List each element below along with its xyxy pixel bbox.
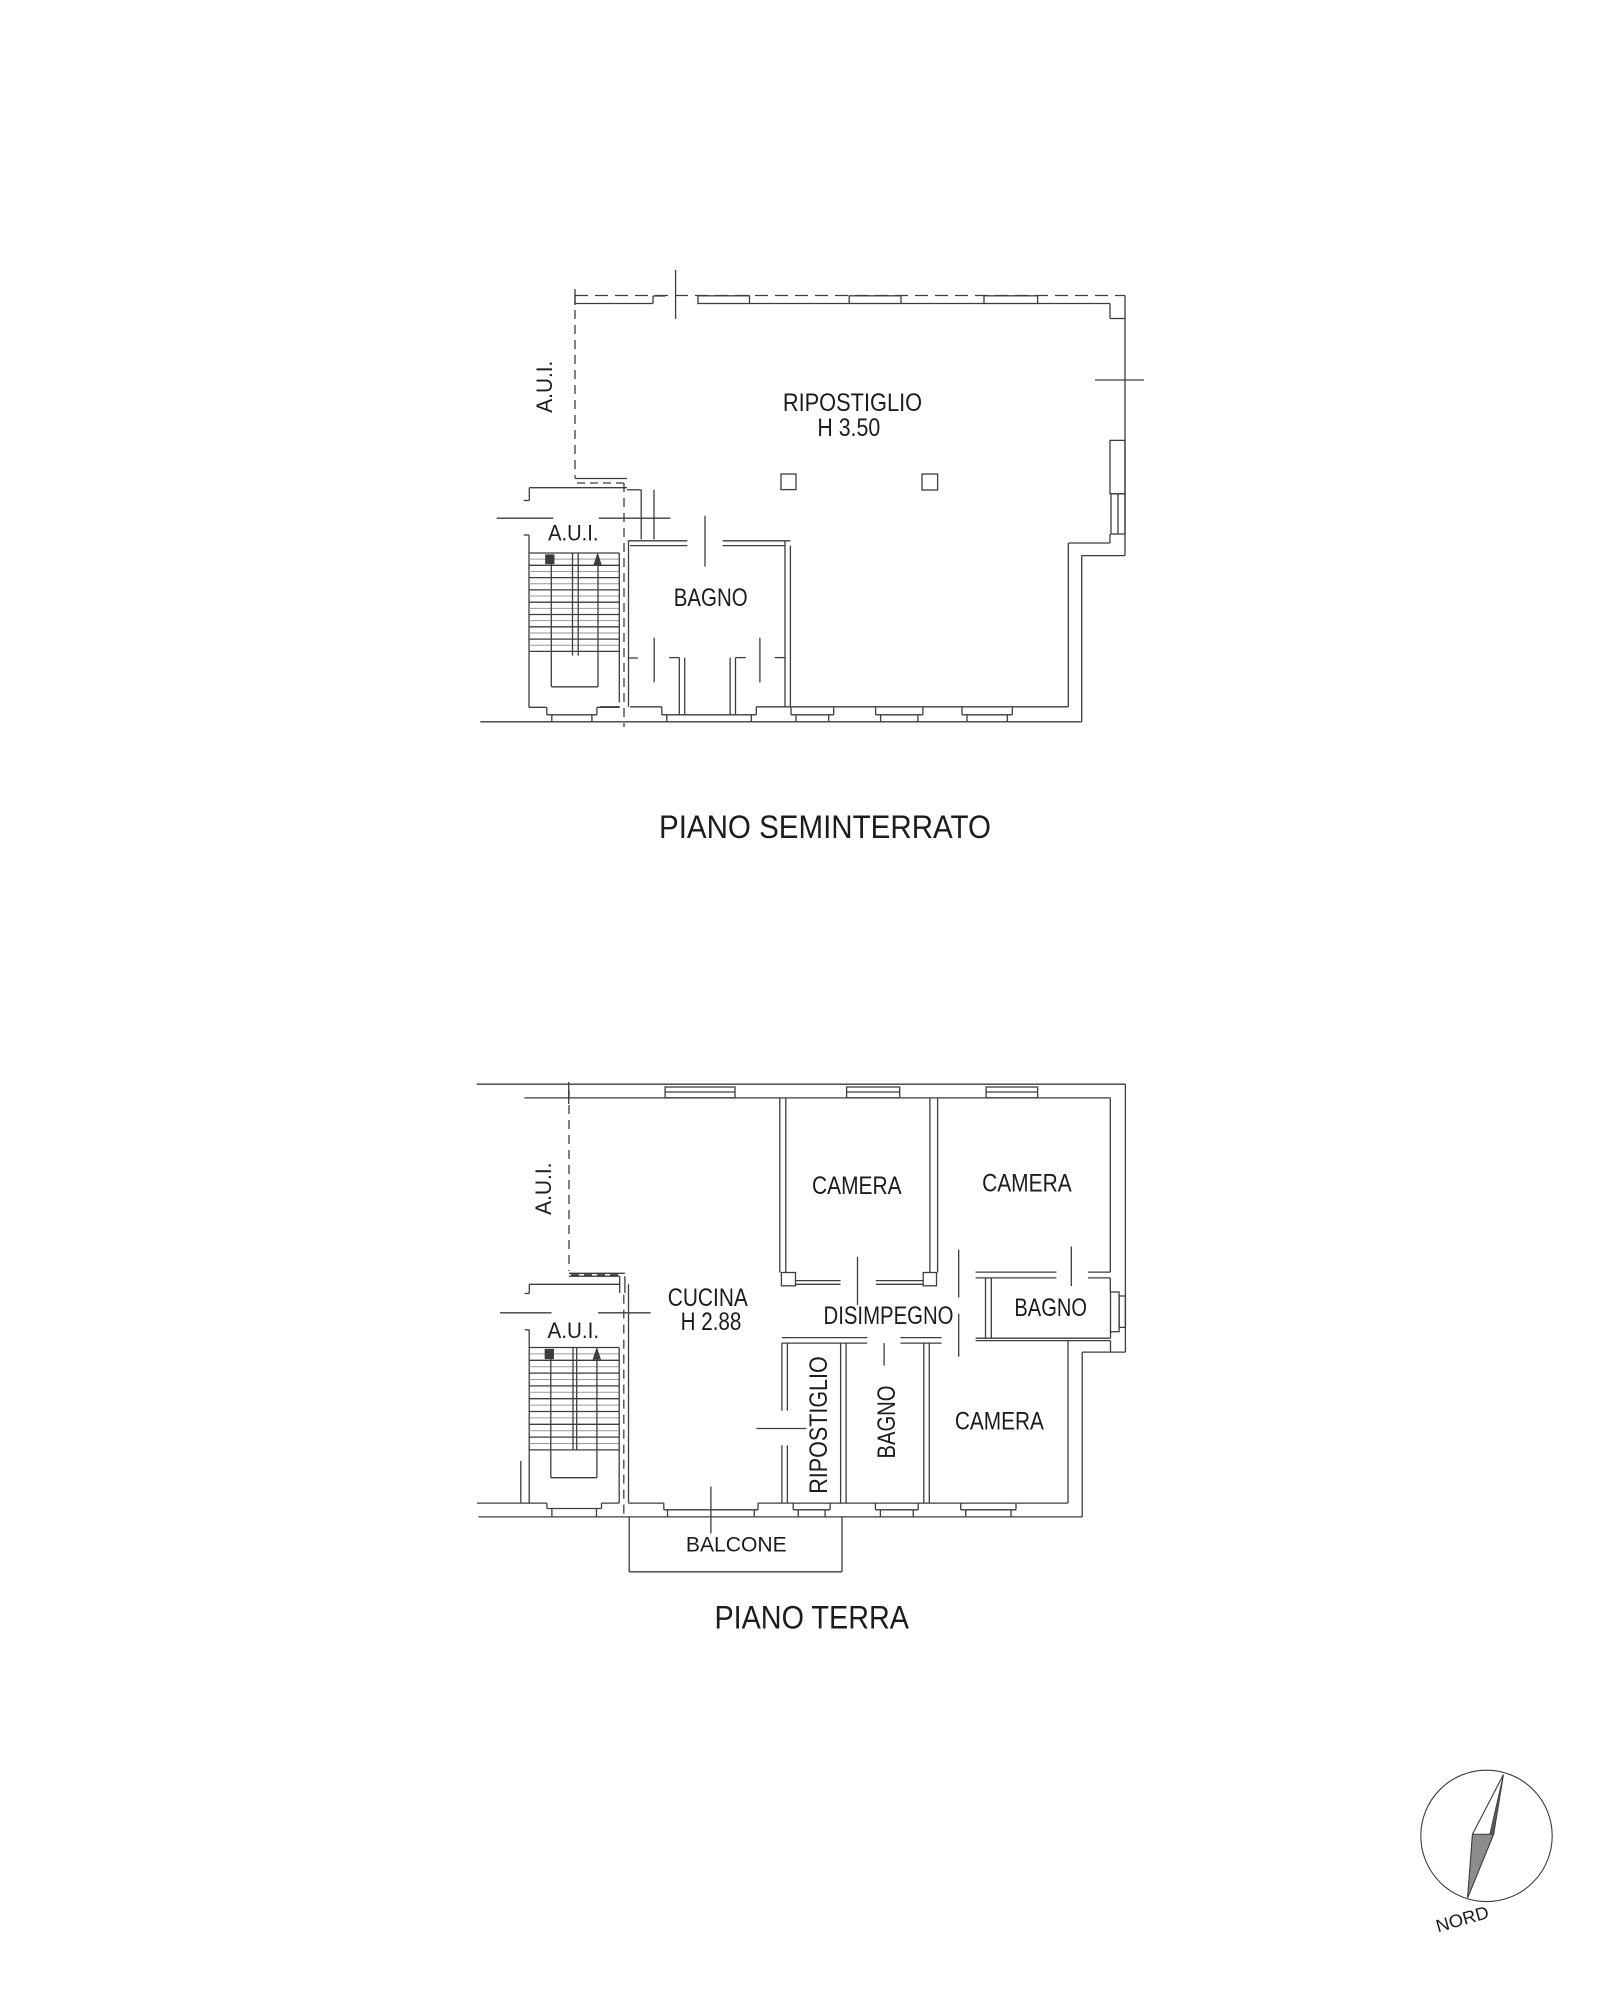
svg-text:PIANO TERRA: PIANO TERRA	[714, 1600, 909, 1636]
svg-text:BAGNO: BAGNO	[1014, 1294, 1087, 1322]
svg-text:RIPOSTIGLIO: RIPOSTIGLIO	[805, 1356, 833, 1494]
svg-text:RIPOSTIGLIO: RIPOSTIGLIO	[783, 389, 922, 417]
svg-text:CAMERA: CAMERA	[812, 1172, 902, 1200]
svg-text:NORD: NORD	[1434, 1902, 1491, 1936]
svg-text:H 2.88: H 2.88	[681, 1308, 742, 1336]
svg-text:CAMERA: CAMERA	[982, 1169, 1072, 1197]
svg-text:A.U.I.: A.U.I.	[547, 1318, 599, 1343]
svg-text:A.U.I.: A.U.I.	[532, 361, 557, 413]
svg-text:H 3.50: H 3.50	[817, 414, 880, 442]
svg-text:CAMERA: CAMERA	[955, 1408, 1044, 1436]
svg-text:A.U.I.: A.U.I.	[531, 1163, 556, 1215]
svg-text:PIANO SEMINTERRATO: PIANO SEMINTERRATO	[659, 809, 991, 845]
svg-text:BALCONE: BALCONE	[686, 1534, 787, 1557]
svg-text:BAGNO: BAGNO	[873, 1385, 901, 1458]
svg-text:BAGNO: BAGNO	[674, 584, 748, 612]
svg-text:A.U.I.: A.U.I.	[548, 520, 598, 545]
svg-text:DISIMPEGNO: DISIMPEGNO	[824, 1302, 954, 1330]
